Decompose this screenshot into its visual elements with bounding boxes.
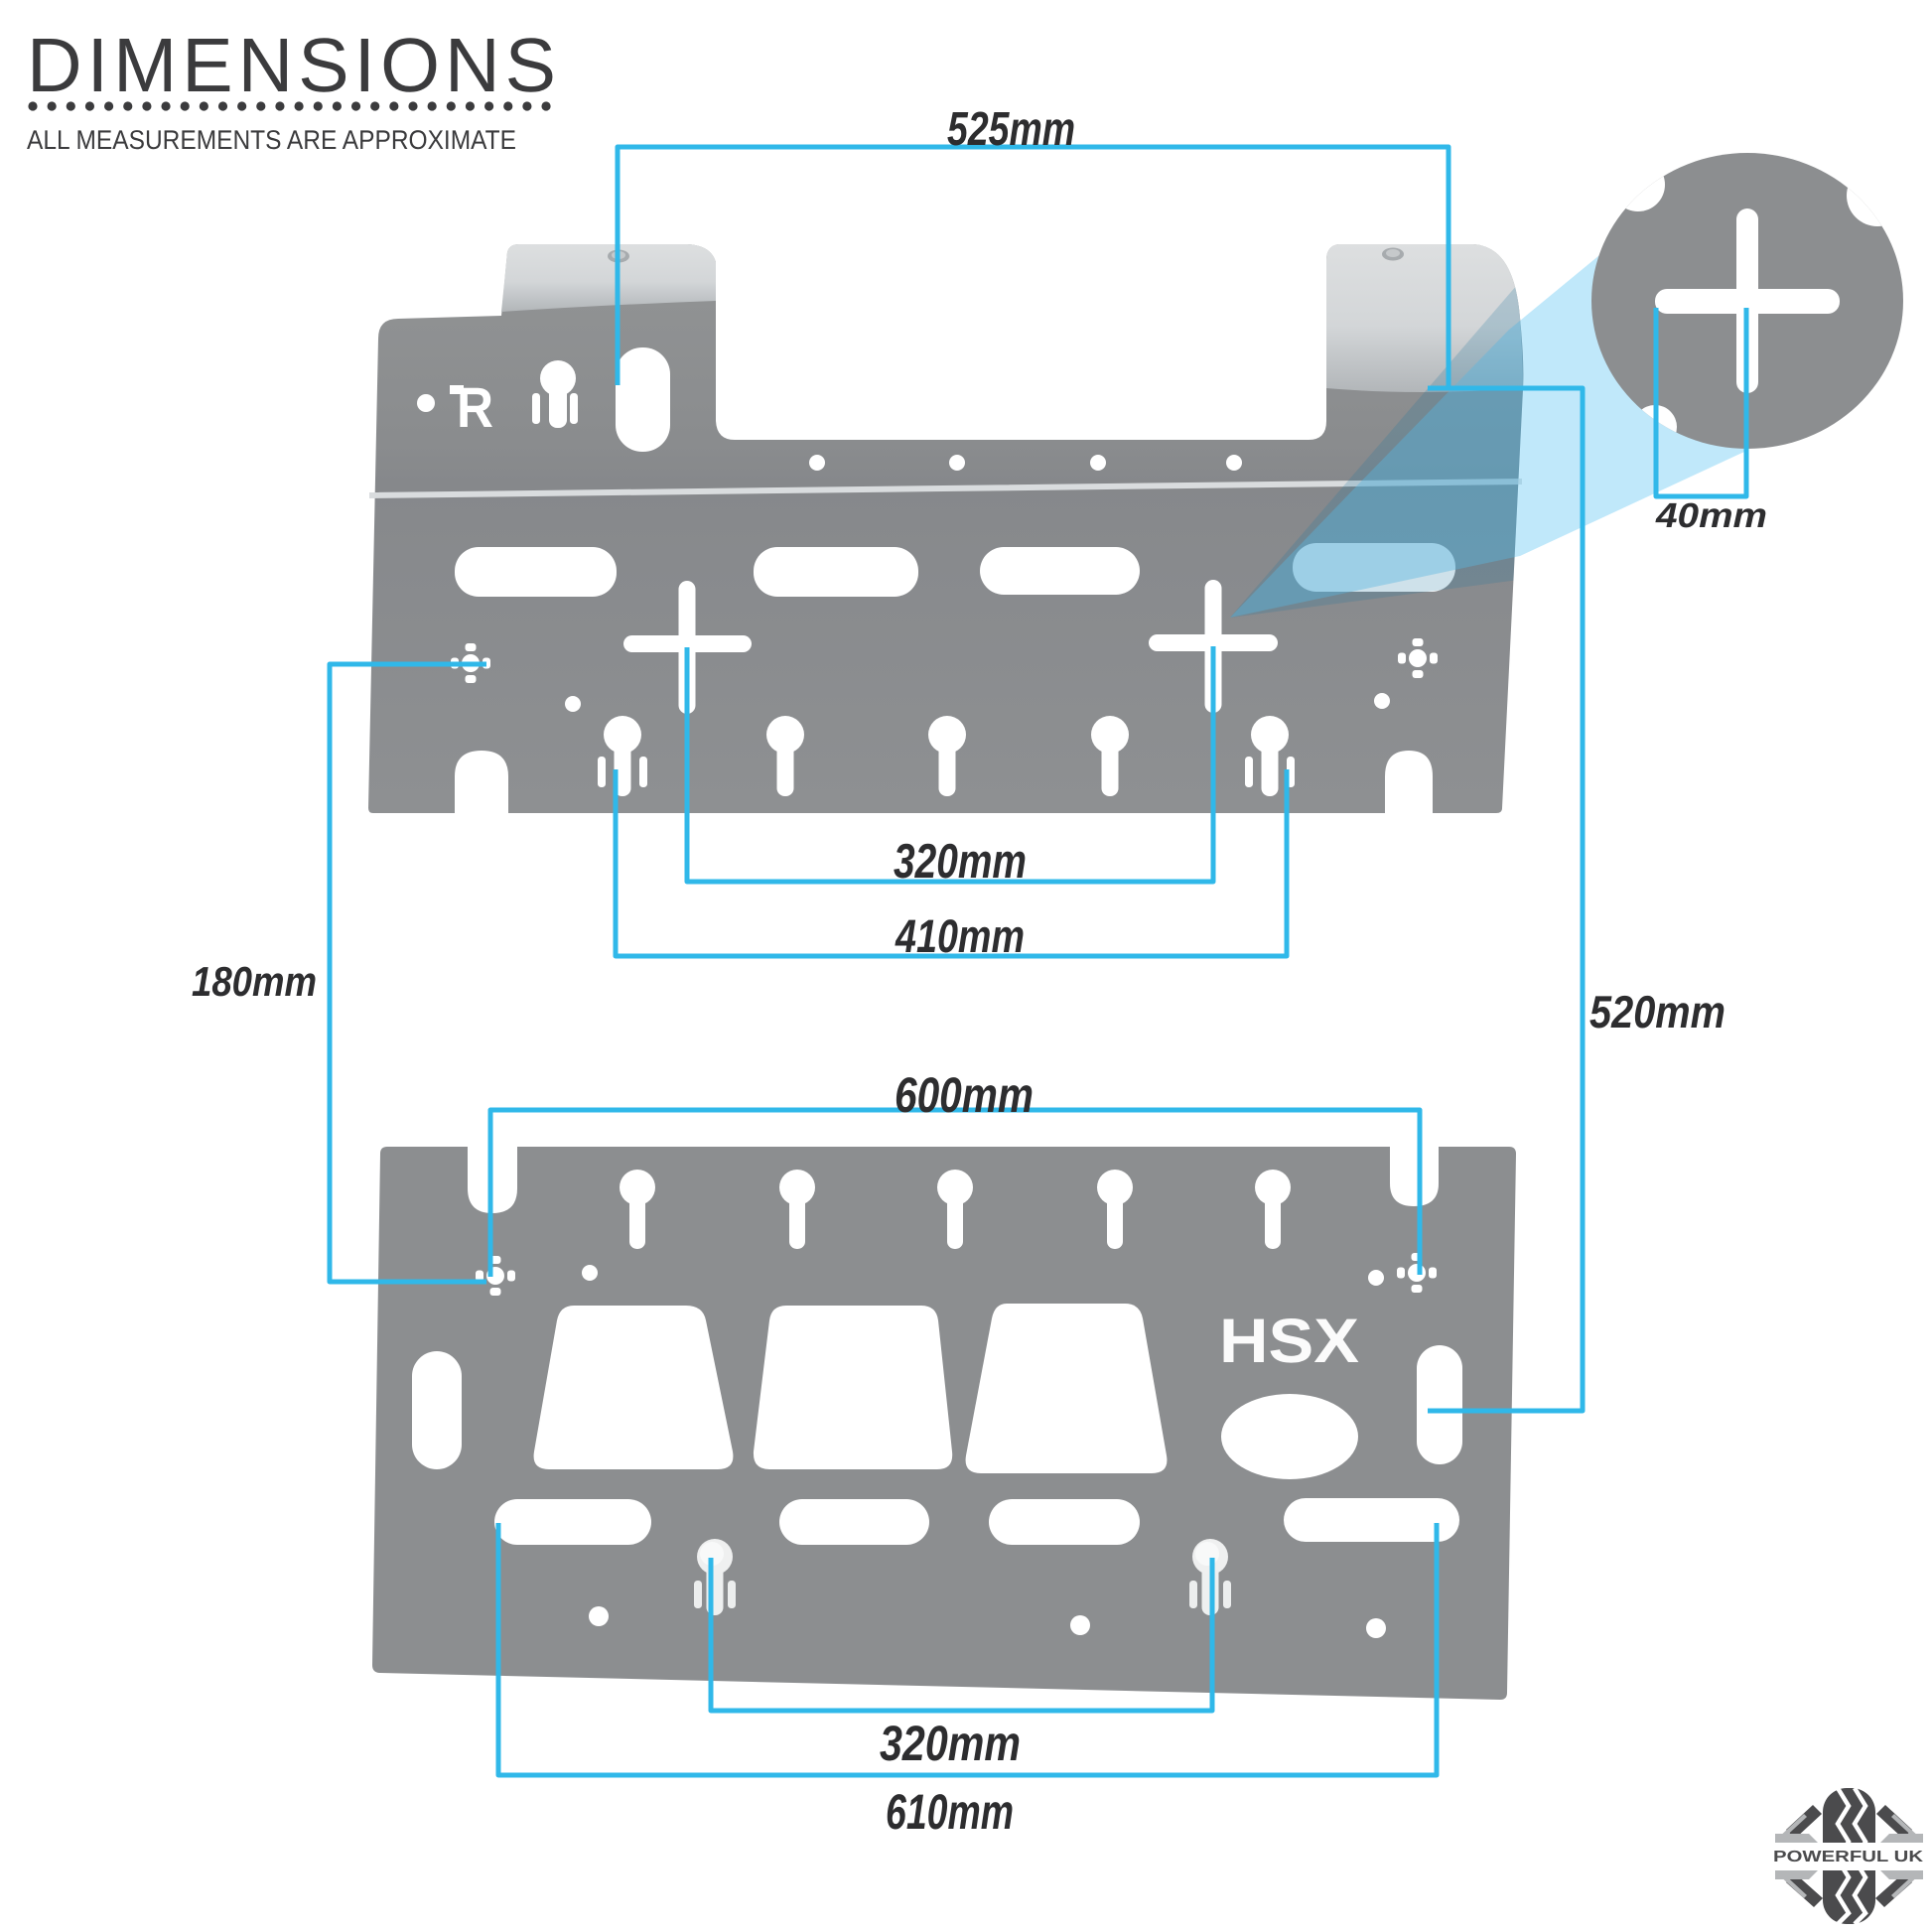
svg-text:DIMENSIONS: DIMENSIONS — [27, 23, 556, 108]
svg-text:HSX: HSX — [1219, 1307, 1359, 1376]
svg-text:ALL MEASUREMENTS ARE APPROXIMA: ALL MEASUREMENTS ARE APPROXIMATE — [27, 125, 516, 155]
svg-text:600mm: 600mm — [895, 1067, 1034, 1123]
svg-text:410mm: 410mm — [895, 909, 1025, 962]
svg-text:40mm: 40mm — [1655, 496, 1767, 535]
svg-text:525mm: 525mm — [947, 103, 1075, 156]
svg-text:610mm: 610mm — [886, 1784, 1014, 1840]
svg-text:320mm: 320mm — [880, 1716, 1021, 1771]
svg-text:520mm: 520mm — [1589, 986, 1725, 1037]
svg-text:POWERFUL UK: POWERFUL UK — [1773, 1849, 1924, 1865]
svg-text:320mm: 320mm — [894, 835, 1027, 889]
svg-text:180mm: 180mm — [192, 958, 317, 1005]
